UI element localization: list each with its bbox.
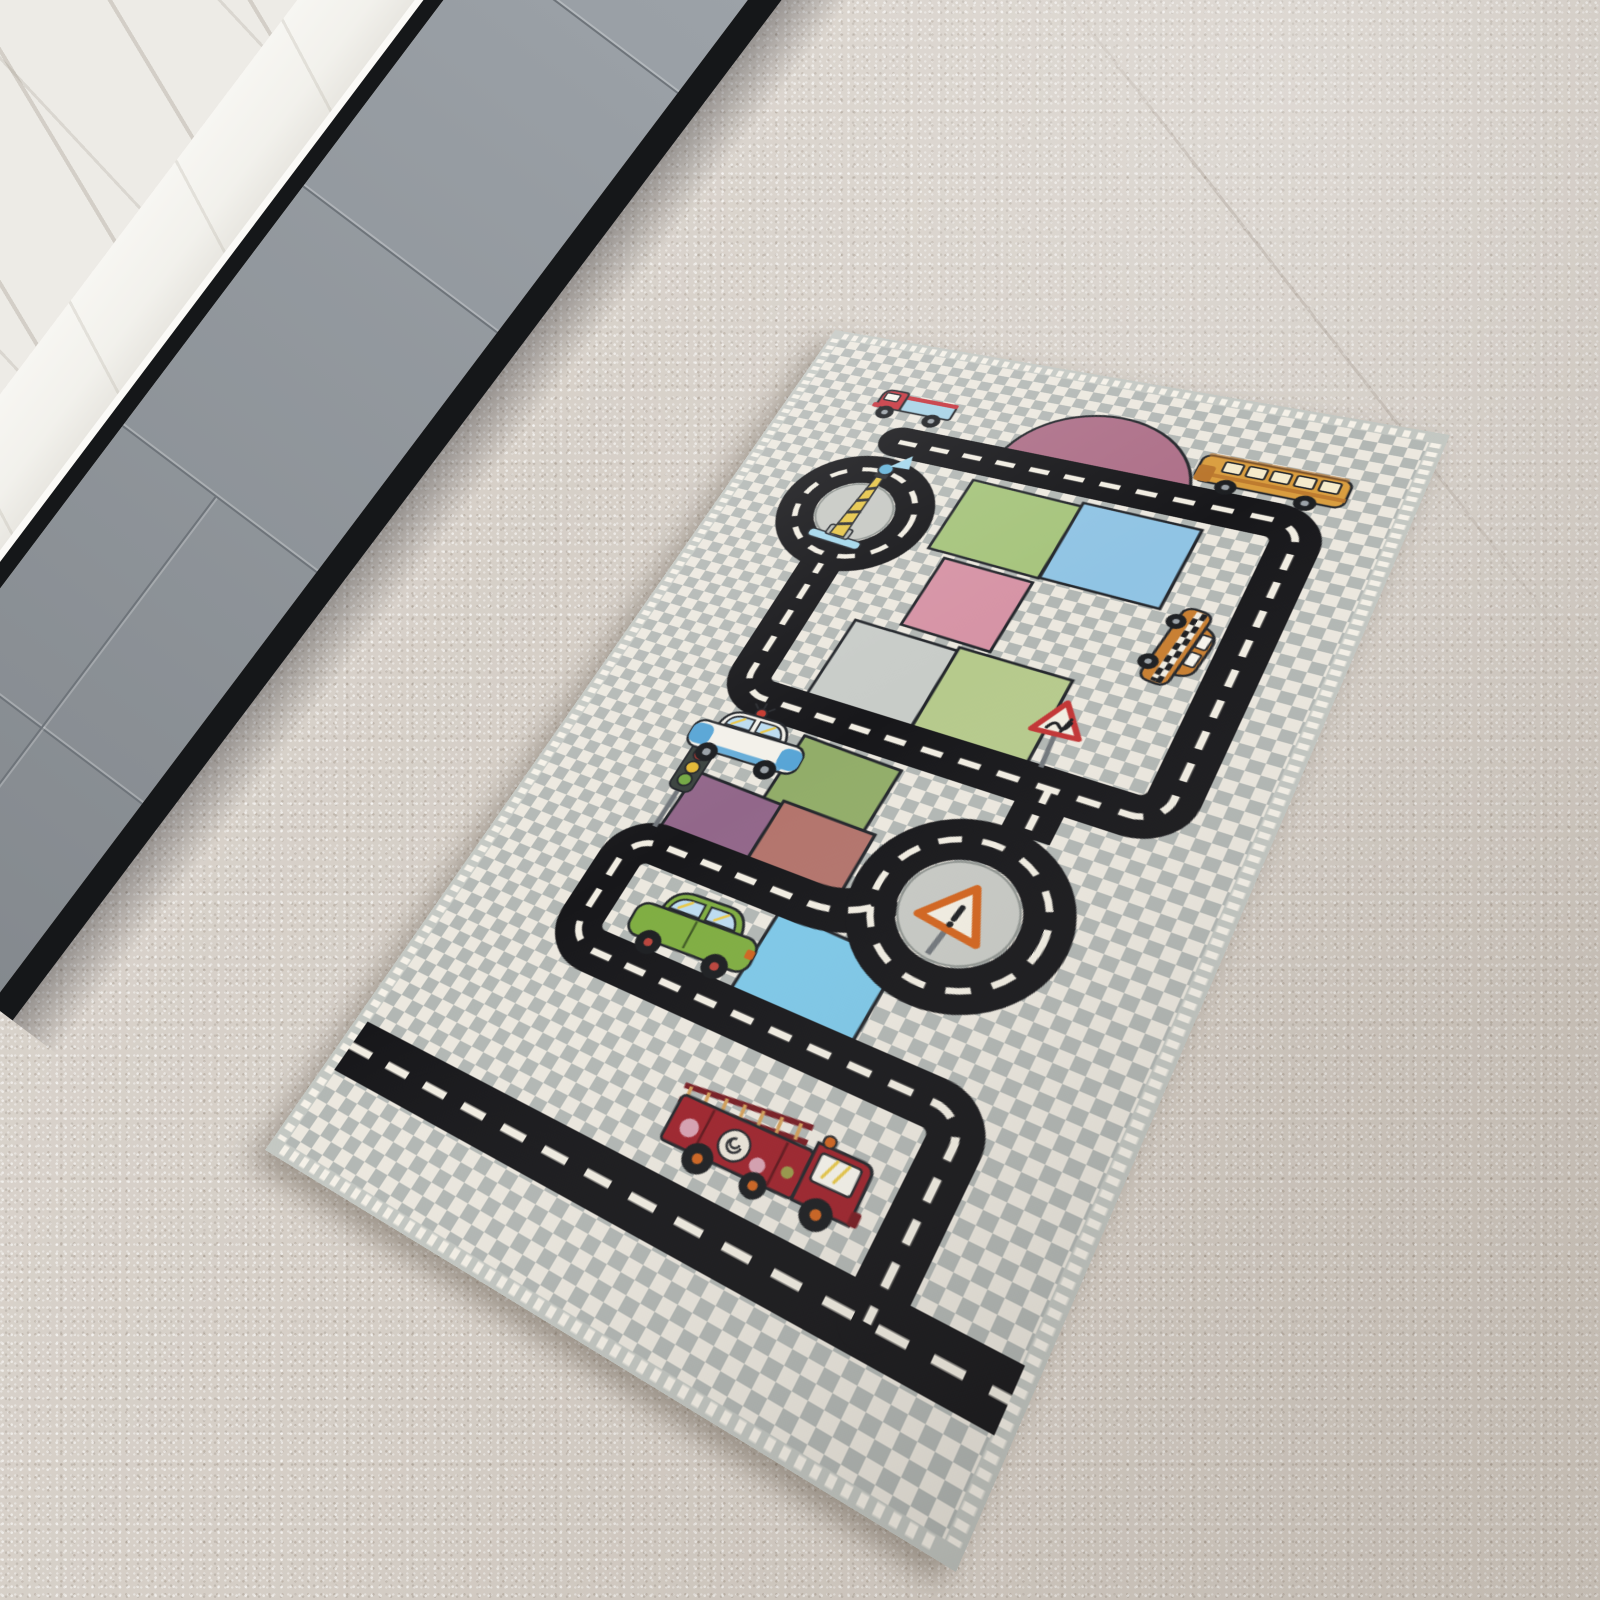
rug-sheen [265, 330, 1450, 1572]
play-rug [0, 0, 1600, 1600]
scene-photo [0, 0, 1600, 1600]
